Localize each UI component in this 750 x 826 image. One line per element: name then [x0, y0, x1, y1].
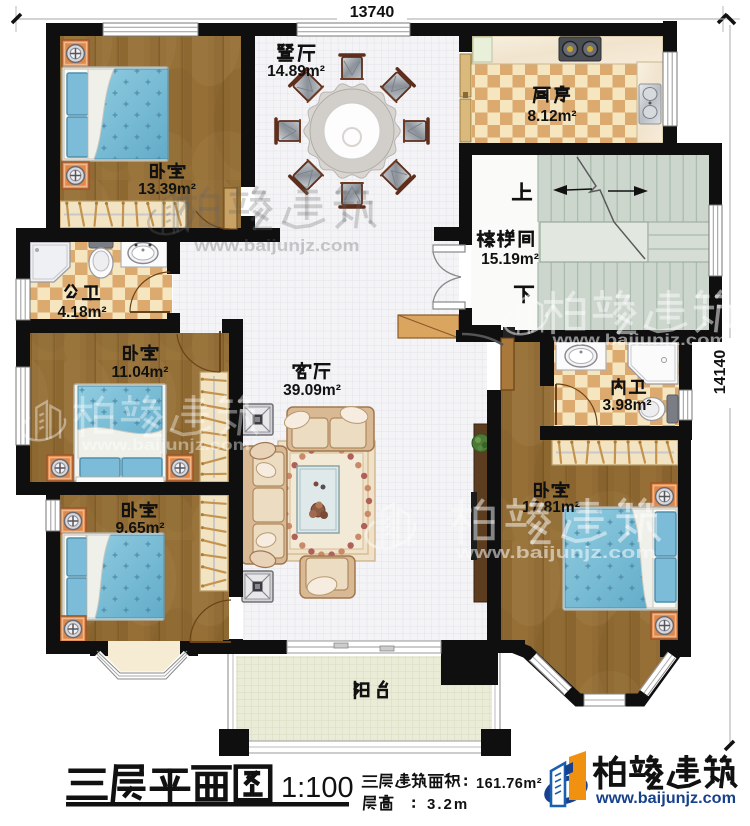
svg-text:www.baijunjz.com: www.baijunjz.com: [595, 790, 736, 807]
svg-text:11.04m²: 11.04m²: [112, 364, 169, 381]
svg-text:4.18m²: 4.18m²: [57, 304, 106, 321]
svg-text:14.89m²: 14.89m²: [267, 63, 325, 80]
svg-text:9.65m²: 9.65m²: [115, 520, 164, 537]
svg-text:39.09m²: 39.09m²: [283, 382, 341, 399]
svg-text:14140: 14140: [712, 350, 729, 395]
svg-text:3.2m: 3.2m: [427, 796, 469, 813]
svg-text:1:100: 1:100: [281, 772, 354, 804]
svg-text:www.baijunjz.com: www.baijunjz.com: [193, 236, 359, 255]
svg-text:15.19m²: 15.19m²: [481, 251, 539, 268]
svg-text:www.baijunjz.com: www.baijunjz.com: [455, 543, 656, 562]
svg-text:161.76m²: 161.76m²: [476, 776, 542, 792]
svg-text:3.98m²: 3.98m²: [602, 397, 651, 414]
svg-text:www.baijunjz.com: www.baijunjz.com: [81, 437, 250, 454]
svg-text:8.12m²: 8.12m²: [527, 108, 576, 125]
svg-text:13740: 13740: [350, 4, 395, 21]
svg-text:www.baijunjz.com: www.baijunjz.com: [551, 332, 727, 349]
